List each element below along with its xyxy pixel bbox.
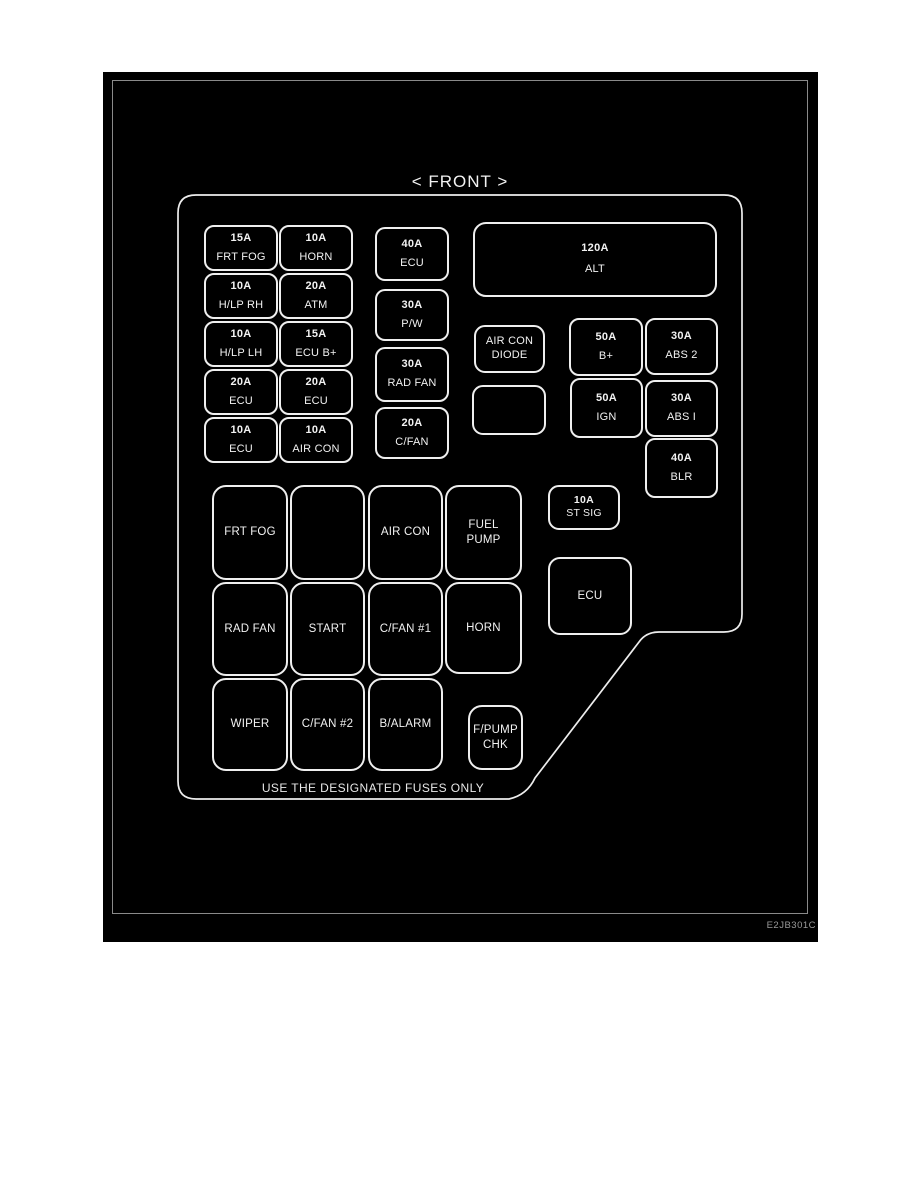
fuse-name-label: H/LP LH (220, 347, 263, 361)
fuse-name-label: ECU (578, 589, 603, 603)
fuse-name-label: ST SIG (566, 507, 601, 520)
fuse-name-label: F/PUMP CHK (473, 723, 518, 752)
fuse-h-lp-lh: 10AH/LP LH (204, 321, 278, 367)
relay-wiper: WIPER (212, 678, 288, 771)
fuse-diagram-panel: < FRONT > 15AFRT FOG10AHORN10AH/LP RH20A… (103, 72, 818, 942)
relay-b-alarm: B/ALARM (368, 678, 443, 771)
fuse-name-label: ECU (229, 395, 253, 409)
fuse-name-label: FRT FOG (224, 525, 275, 539)
fuse-name-label: ECU (229, 443, 253, 457)
fuse-amp-label: 30A (401, 358, 422, 370)
fuse-amp-label: 50A (596, 392, 617, 404)
fuse-name-label: ECU (304, 395, 328, 409)
fuse-name-label: ECU B+ (295, 347, 336, 361)
designated-fuses-note: USE THE DESIGNATED FUSES ONLY (203, 781, 543, 795)
fuse-amp-label: 15A (230, 232, 251, 244)
fuse-air-con-diode: AIR CON DIODE (474, 325, 545, 373)
fuse-name-label: ABS I (667, 411, 696, 425)
fuse-ecu: 10AECU (204, 417, 278, 463)
fuse-name-label: FRT FOG (216, 251, 265, 265)
relay-rad-fan: RAD FAN (212, 582, 288, 676)
fuse-frt-fog: 15AFRT FOG (204, 225, 278, 271)
relay-f-pump-chk: F/PUMP CHK (468, 705, 523, 770)
fuse-amp-label: 10A (305, 232, 326, 244)
fuse-abs-i: 30AABS I (645, 380, 718, 437)
relay-empty-slot (290, 485, 365, 580)
fuse-horn: 10AHORN (279, 225, 353, 271)
fuse-amp-label: 10A (230, 280, 251, 292)
fuse-alt: 120AALT (473, 222, 717, 297)
fuse-name-label: RAD FAN (387, 377, 436, 391)
fuse-name-label: IGN (596, 411, 616, 425)
relay-air-con: AIR CON (368, 485, 443, 580)
fuse-amp-label: 20A (305, 280, 326, 292)
fuse-ecu: 20AECU (204, 369, 278, 415)
fuse-b: 50AB+ (569, 318, 643, 376)
fuse-name-label: AIR CON (292, 443, 339, 457)
fuse-air-con: 10AAIR CON (279, 417, 353, 463)
fuse-amp-label: 10A (574, 494, 594, 506)
relay-fuel-pump: FUEL PUMP (445, 485, 522, 580)
fuse-amp-label: 120A (581, 242, 609, 254)
fuse-h-lp-rh: 10AH/LP RH (204, 273, 278, 319)
fuse-name-label: B/ALARM (380, 717, 432, 731)
fuse-name-label: BLR (671, 471, 693, 485)
fuse-amp-label: 10A (230, 328, 251, 340)
fuse-name-label: START (309, 622, 347, 636)
fuse-name-label: RAD FAN (224, 622, 275, 636)
fuse-name-label: ALT (585, 263, 605, 277)
fuse-st-sig: 10AST SIG (548, 485, 620, 530)
fuse-amp-label: 30A (671, 330, 692, 342)
fuse-name-label: FUEL PUMP (466, 518, 500, 547)
page: < FRONT > 15AFRT FOG10AHORN10AH/LP RH20A… (0, 0, 918, 1188)
fuse-amp-label: 40A (671, 452, 692, 464)
fuse-name-label: HORN (299, 251, 332, 265)
fuse-name-label: P/W (401, 318, 422, 332)
fuse-name-label: WIPER (231, 717, 270, 731)
fuse-ecu-b: 15AECU B+ (279, 321, 353, 367)
fuse-p-w: 30AP/W (375, 289, 449, 341)
fuse-amp-label: 10A (230, 424, 251, 436)
fuse-name-label: AIR CON (381, 525, 430, 539)
fuse-name-label: AIR CON DIODE (486, 335, 533, 363)
fuse-amp-label: 20A (401, 417, 422, 429)
fuse-c-fan: 20AC/FAN (375, 407, 449, 459)
fuse-blr: 40ABLR (645, 438, 718, 498)
fuse-amp-label: 20A (305, 376, 326, 388)
relay-frt-fog: FRT FOG (212, 485, 288, 580)
relay-ecu: ECU (548, 557, 632, 635)
fuse-name-label: ATM (304, 299, 327, 313)
fuse-amp-label: 50A (595, 331, 616, 343)
fuse-name-label: C/FAN #2 (302, 717, 353, 731)
fuse-empty-slot (472, 385, 546, 435)
fuse-name-label: B+ (599, 350, 613, 364)
fuse-amp-label: 15A (305, 328, 326, 340)
fuse-amp-label: 30A (671, 392, 692, 404)
relay-horn: HORN (445, 582, 522, 674)
fuse-name-label: ABS 2 (665, 349, 697, 363)
fuse-name-label: C/FAN #1 (380, 622, 431, 636)
fuse-ecu: 20AECU (279, 369, 353, 415)
fuse-name-label: C/FAN (395, 436, 428, 450)
figure-code: E2JB301C (653, 920, 816, 931)
relay-c-fan-2: C/FAN #2 (290, 678, 365, 771)
fuse-amp-label: 20A (230, 376, 251, 388)
fuse-ign: 50AIGN (570, 378, 643, 438)
fuse-atm: 20AATM (279, 273, 353, 319)
fuse-name-label: H/LP RH (219, 299, 264, 313)
fuse-amp-label: 40A (401, 238, 422, 250)
relay-start: START (290, 582, 365, 676)
fuse-rad-fan: 30ARAD FAN (375, 347, 449, 402)
fuse-amp-label: 30A (401, 299, 422, 311)
fuse-name-label: ECU (400, 257, 424, 271)
fuse-ecu: 40AECU (375, 227, 449, 281)
relay-c-fan-1: C/FAN #1 (368, 582, 443, 676)
fuse-abs-2: 30AABS 2 (645, 318, 718, 375)
fuse-amp-label: 10A (305, 424, 326, 436)
fuse-name-label: HORN (466, 621, 501, 635)
